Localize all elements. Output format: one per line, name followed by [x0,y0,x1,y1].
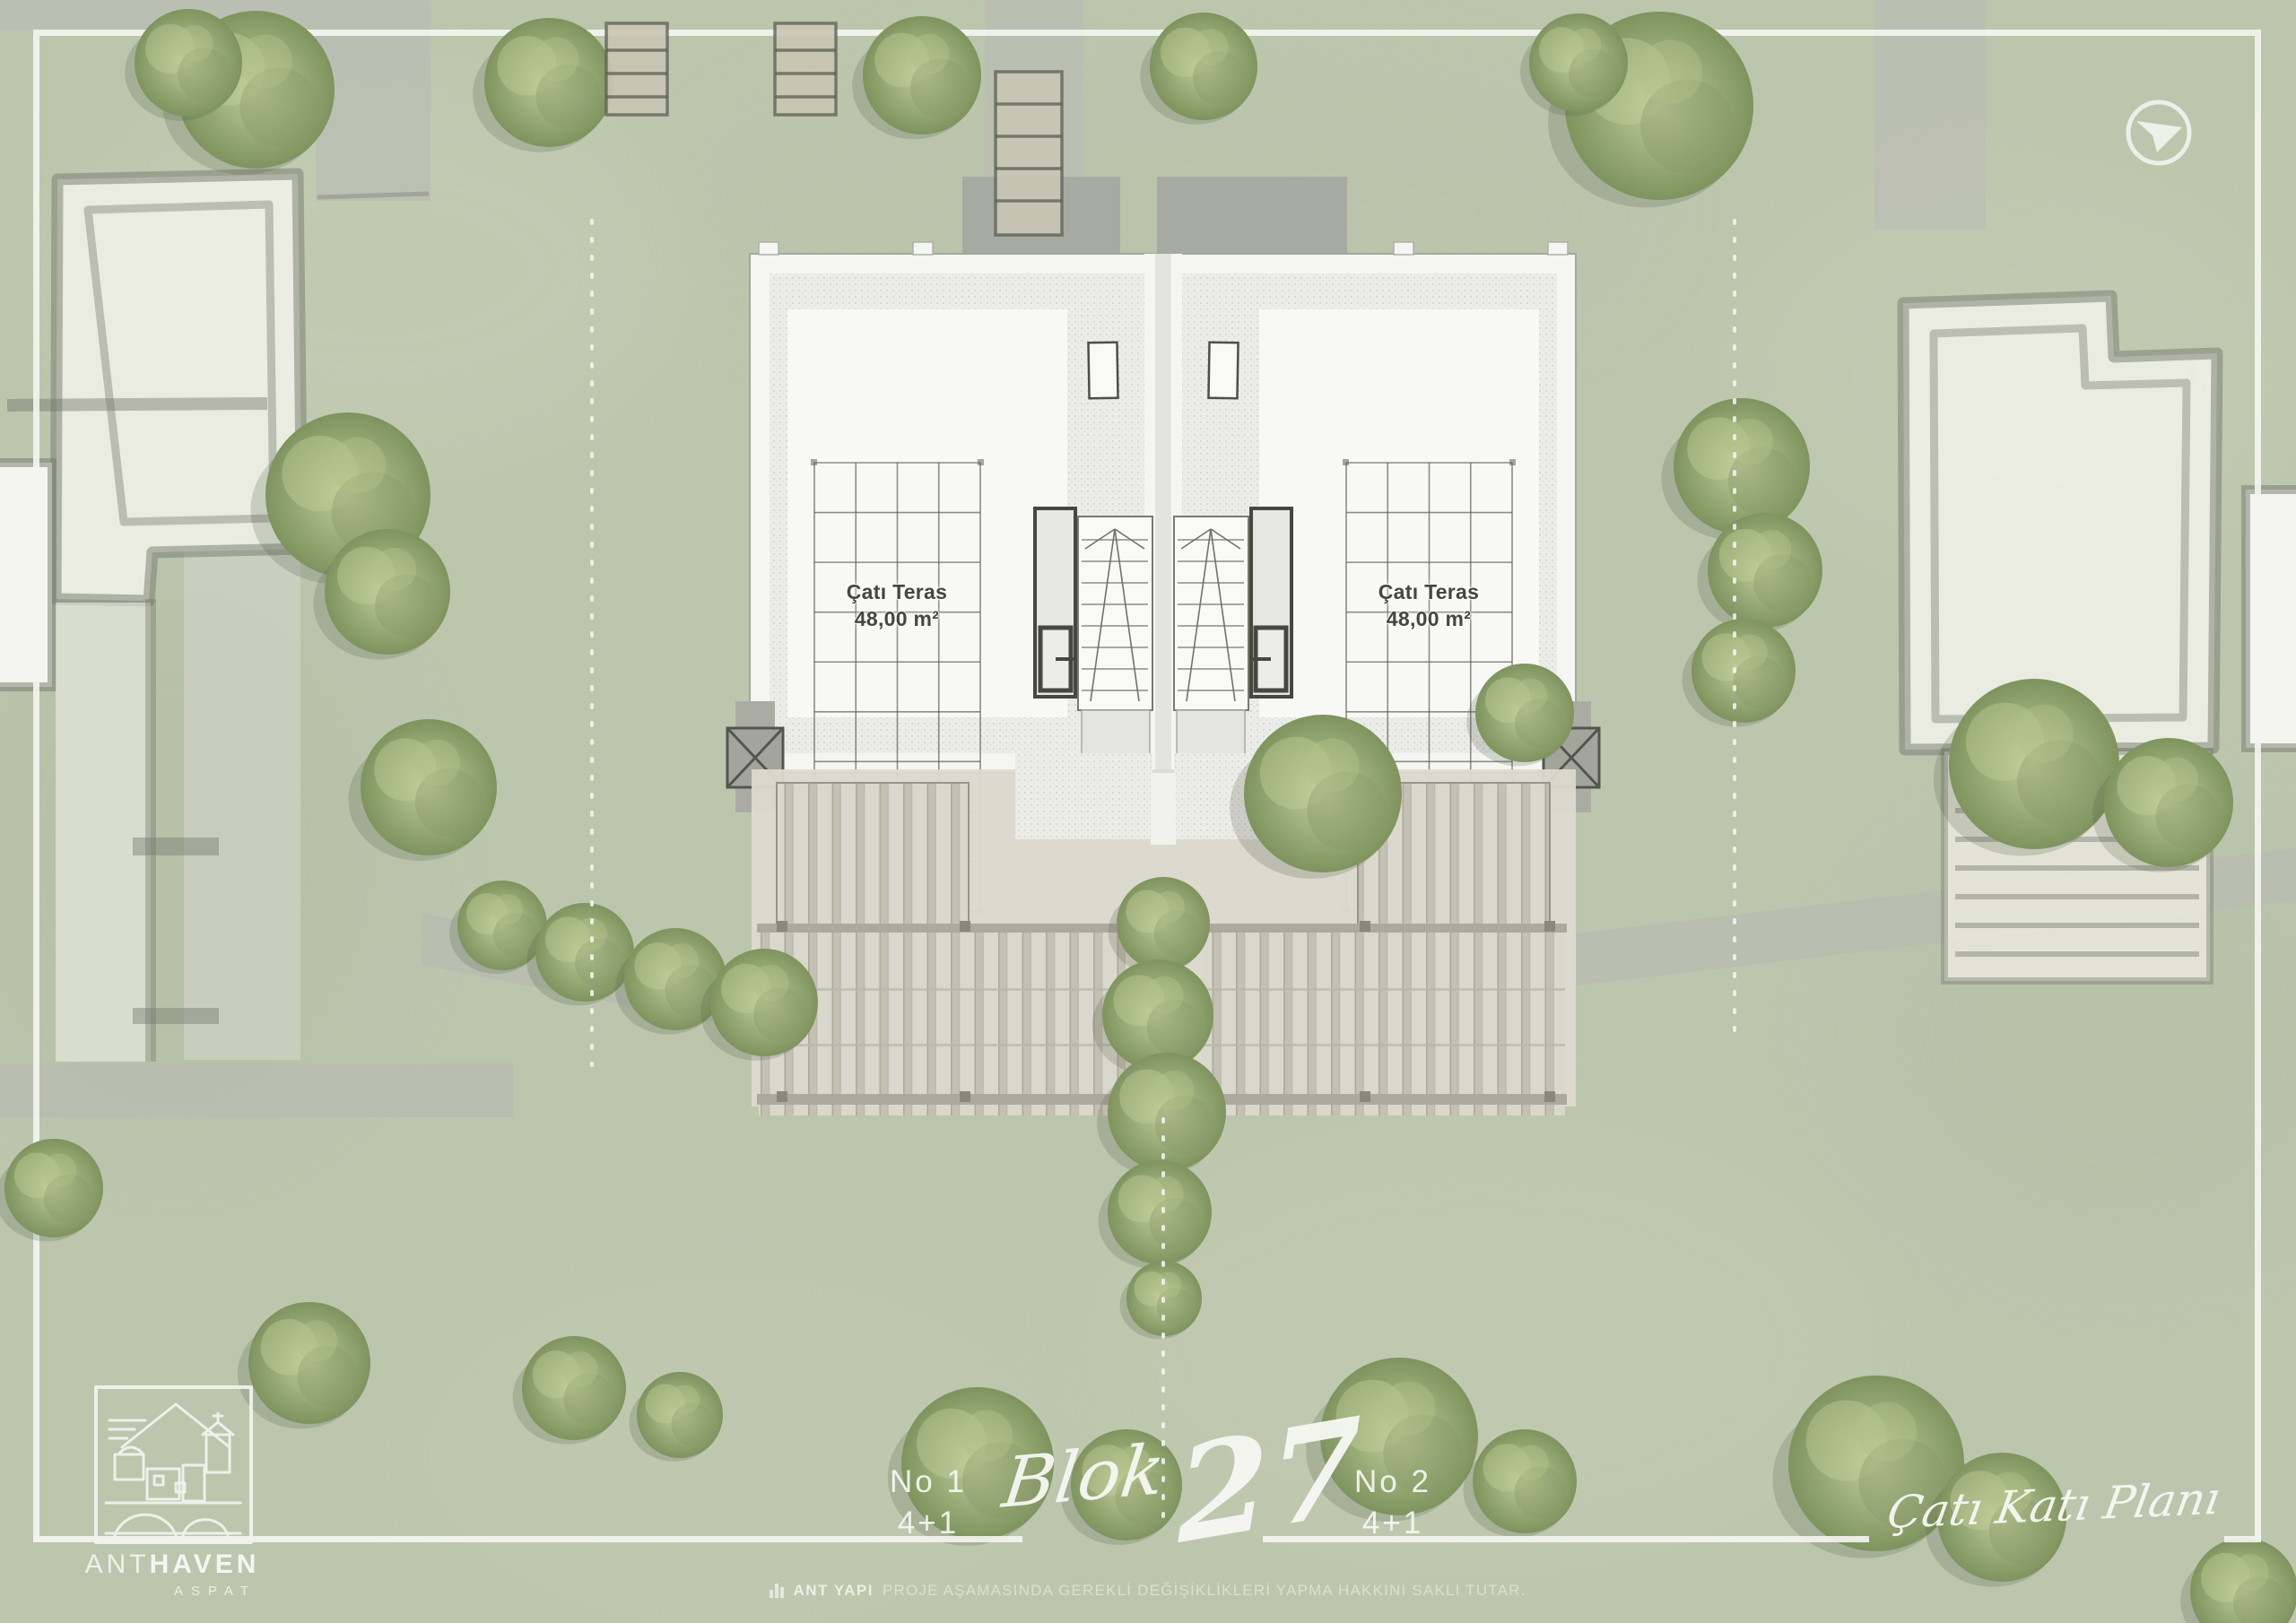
block-title: Blok 27 [1004,1388,1363,1541]
brand-name-bold: HAVEN [150,1549,260,1579]
site-plan-canvas: Çatı Teras 48,00 m² Çatı Teras 48,00 m² … [0,0,2296,1623]
disclaimer-line: ANT YAPI PROJE AŞAMASINDA GEREKLİ DEĞİŞİ… [0,1582,2296,1600]
terrace-label-text: Çatı Teras [816,579,978,606]
brand-name: ANTHAVEN [83,1549,262,1580]
brand-name-regular: ANT [85,1549,150,1579]
block-number: 27 [1174,1406,1365,1556]
terrace-label-text: Çatı Teras [1348,579,1509,606]
block-label: Blok [998,1429,1169,1523]
terrace-label-unit2: Çatı Teras 48,00 m² [1348,579,1509,633]
terrace-label-unit1: Çatı Teras 48,00 m² [816,579,978,633]
unit1-number-label: No 1 4+1 [848,1462,1009,1544]
terrace-area-value: 48,00 m² [816,606,978,633]
unit-type: 4+1 [848,1503,1009,1544]
bar-chart-icon [770,1584,784,1598]
unit-no: No 1 [848,1462,1009,1503]
disclaimer-text: PROJE AŞAMASINDA GEREKLİ DEĞİŞİKLİKLERİ … [883,1582,1526,1600]
disclaimer-company: ANT YAPI [793,1582,873,1600]
terrace-area-value: 48,00 m² [1348,606,1509,633]
roof-plan-drawing [0,0,2296,1623]
